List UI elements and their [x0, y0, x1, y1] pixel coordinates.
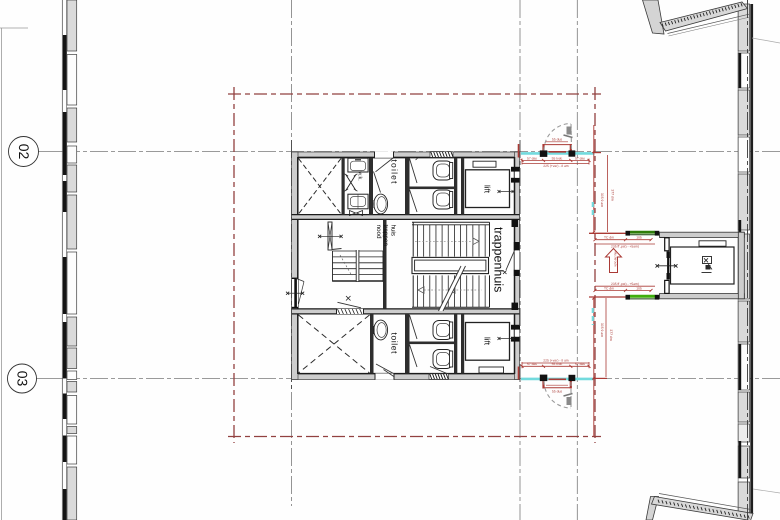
svg-text:lift: lift — [483, 337, 492, 346]
svg-text:toilet: toilet — [389, 160, 399, 185]
svg-text:225 (+var) - 8 am: 225 (+var) - 8 am — [543, 164, 569, 168]
svg-text:03: 03 — [14, 371, 30, 387]
svg-text:lift: lift — [483, 185, 492, 194]
svg-text:235 ff ,pst) - +5am): 235 ff ,pst) - +5am) — [611, 282, 639, 286]
svg-text:105: 105 — [636, 286, 642, 290]
svg-text:57 das: 57 das — [527, 362, 537, 366]
svg-text:vluchtroute: vluchtroute — [614, 251, 618, 267]
svg-text:57 das: 57 das — [575, 362, 585, 366]
svg-text:trappenhuis: trappenhuis — [492, 227, 506, 292]
svg-text:57 das: 57 das — [527, 156, 537, 160]
svg-text:55 tvdc: 55 tvdc — [552, 362, 563, 366]
svg-text:305 9 am: 305 9 am — [600, 323, 604, 337]
svg-text:377 dm: 377 dm — [611, 189, 615, 200]
svg-text:w.k.: w.k. — [357, 170, 363, 181]
svg-text:105: 105 — [636, 236, 642, 240]
svg-text:toilet: toilet — [389, 333, 399, 355]
svg-text:TC dm: TC dm — [604, 286, 614, 290]
svg-text:225 (+var) - 8 am: 225 (+var) - 8 am — [543, 359, 569, 363]
svg-text:235 ff ,pst) - +5am): 235 ff ,pst) - +5am) — [611, 245, 639, 249]
svg-text:TC dm: TC dm — [604, 236, 614, 240]
svg-text:55 dus: 55 dus — [552, 138, 562, 142]
svg-text:55 tvdc: 55 tvdc — [552, 156, 563, 160]
svg-text:57 das: 57 das — [575, 156, 585, 160]
svg-text:377 dm: 377 dm — [609, 329, 613, 340]
svg-text:02: 02 — [16, 144, 32, 160]
svg-text:55 dus: 55 dus — [552, 389, 562, 393]
svg-text:305 9 am: 305 9 am — [600, 193, 604, 207]
